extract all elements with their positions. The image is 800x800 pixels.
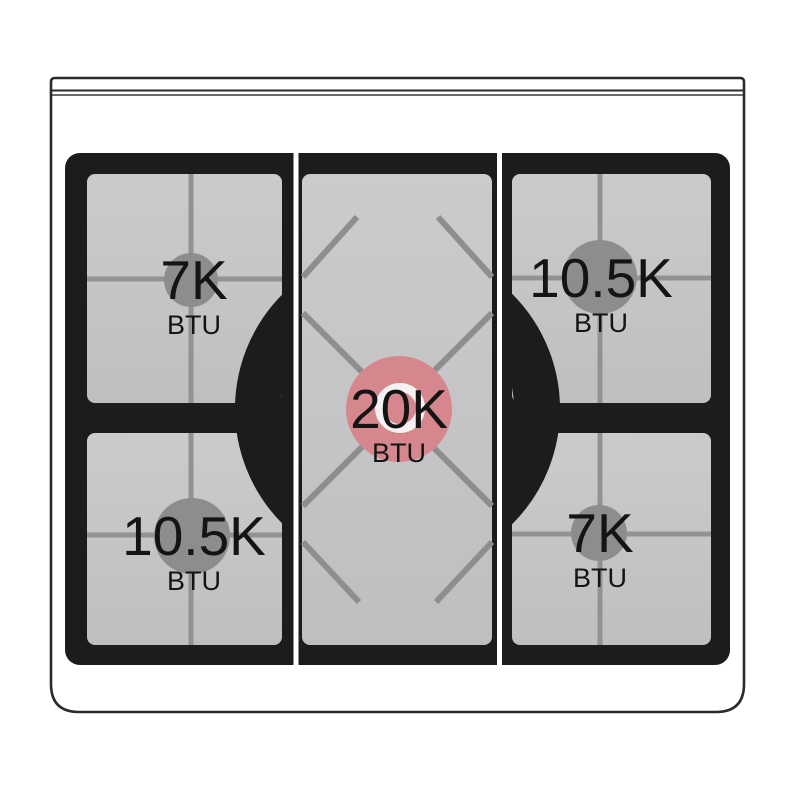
label-center-power: 20K — [350, 378, 448, 440]
label-front-right-unit: BTU — [573, 563, 627, 593]
label-rear-left-power: 7K — [160, 249, 228, 311]
label-front-right-power: 7K — [566, 502, 634, 564]
label-rear-left-unit: BTU — [167, 310, 221, 340]
label-front-left-power: 10.5K — [122, 505, 266, 567]
label-rear-right-unit: BTU — [574, 308, 628, 338]
cooktop-diagram: 7K BTU 10.5K BTU 20K BTU 10.5K BTU 7K BT… — [0, 0, 800, 800]
label-center-unit: BTU — [372, 438, 426, 468]
cooktop-diagram-canvas: 7K BTU 10.5K BTU 20K BTU 10.5K BTU 7K BT… — [0, 0, 800, 800]
label-front-left-unit: BTU — [167, 566, 221, 596]
label-rear-right-power: 10.5K — [529, 247, 673, 309]
